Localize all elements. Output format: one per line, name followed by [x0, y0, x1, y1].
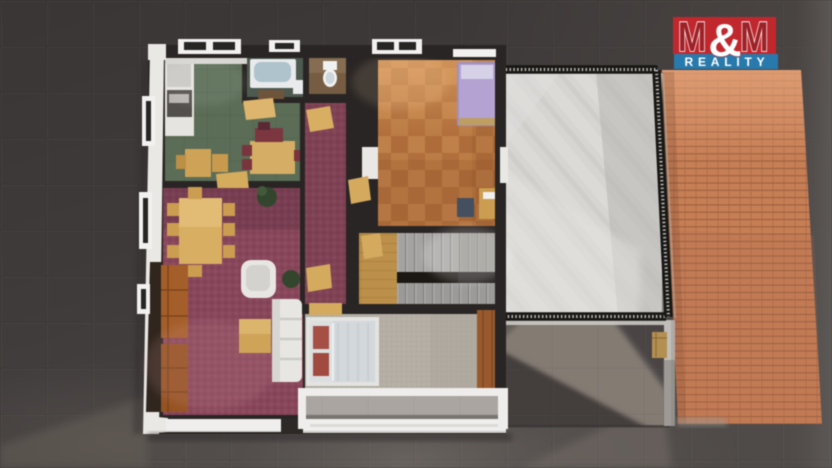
svg-text:M: M	[740, 14, 769, 61]
svg-text:REALITY: REALITY	[685, 55, 770, 69]
svg-text:M: M	[678, 14, 707, 61]
